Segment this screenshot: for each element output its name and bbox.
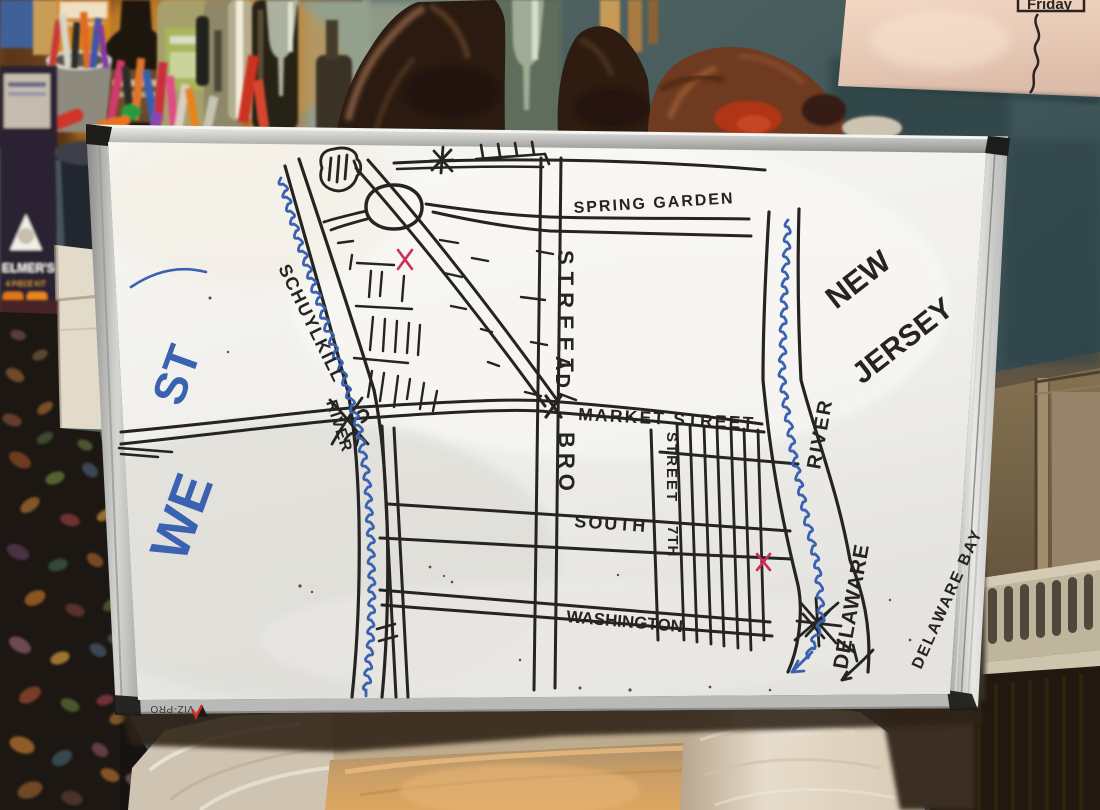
svg-text:BRO: BRO: [554, 432, 579, 496]
svg-text:AD: AD: [551, 356, 573, 391]
svg-text:VIZ-PRO: VIZ-PRO: [150, 703, 194, 714]
svg-text:Friday: Friday: [1027, 0, 1073, 13]
svg-text:7TH: 7TH: [664, 526, 681, 557]
svg-text:STREET: STREET: [663, 432, 680, 503]
svg-text:ELMER'S: ELMER'S: [2, 261, 55, 275]
svg-text:4 PIECE KIT: 4 PIECE KIT: [6, 281, 46, 288]
